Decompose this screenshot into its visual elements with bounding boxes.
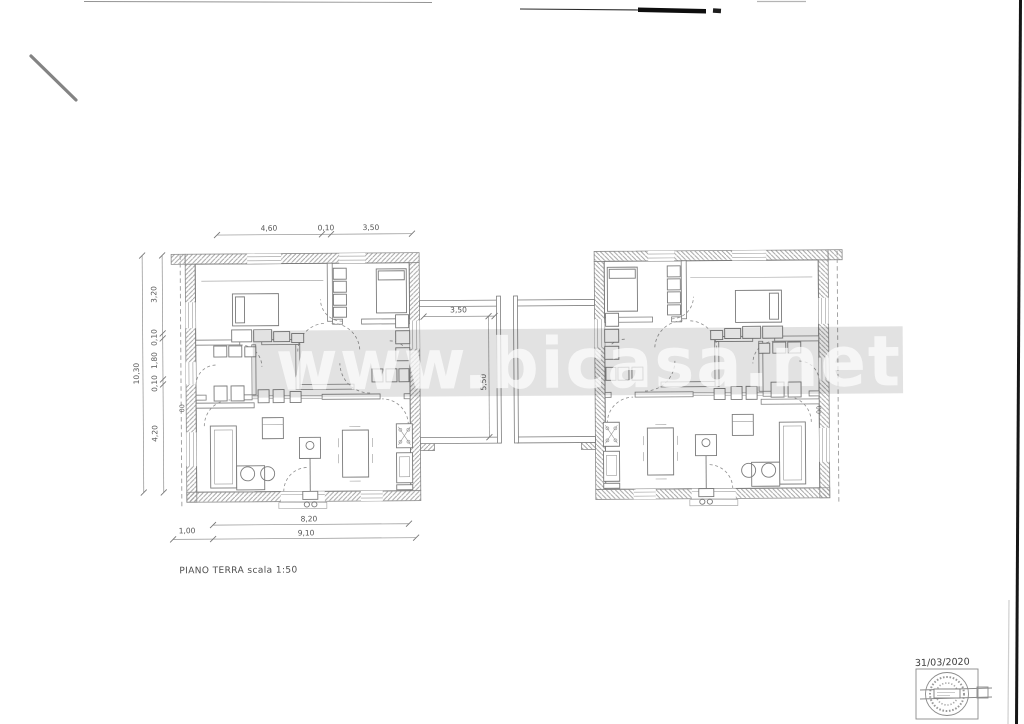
dim-top-1: 4,60 <box>261 224 278 233</box>
floorplan-drawing: 4,60 0,10 3,50 3,20 0,10 1,80 0,10 4,20 … <box>0 0 1024 724</box>
boundary-line-left <box>180 255 182 507</box>
dim-top-3: 3,50 <box>363 223 380 232</box>
dim-bottom-left: 1,00 <box>179 526 196 535</box>
dim-left-3: 1,80 <box>150 352 159 369</box>
dim-top-2: 0,10 <box>318 223 335 232</box>
dim-bottom-inner: 8,20 <box>301 514 318 523</box>
watermark-text: www.bicasa.net <box>276 320 903 406</box>
scanned-floorplan-page: 4,60 0,10 3,50 3,20 0,10 1,80 0,10 4,20 … <box>0 0 1024 724</box>
boundary-label-left: 00 <box>178 404 186 412</box>
dim-left-2: 0,10 <box>150 329 159 346</box>
dim-left-4: 0,10 <box>150 375 159 392</box>
stamp-date: 31/03/2020 <box>915 657 970 669</box>
dim-left-total: 10,30 <box>132 363 141 385</box>
dim-left-5: 4,20 <box>150 425 159 442</box>
watermark: www.bicasa.net <box>253 320 904 407</box>
boundary-label-right: 00 <box>815 406 823 414</box>
dim-bottom-total: 9,10 <box>298 528 315 537</box>
plan-title: PIANO TERRA scala 1:50 <box>179 566 297 577</box>
scan-content: 4,60 0,10 3,50 3,20 0,10 1,80 0,10 4,20 … <box>131 219 904 576</box>
date-stamp: 31/03/2020 <box>915 657 992 719</box>
dim-corridor-width: 3,50 <box>450 305 467 314</box>
round-stamp-icon <box>916 669 992 719</box>
dim-left-1: 3,20 <box>149 286 158 303</box>
